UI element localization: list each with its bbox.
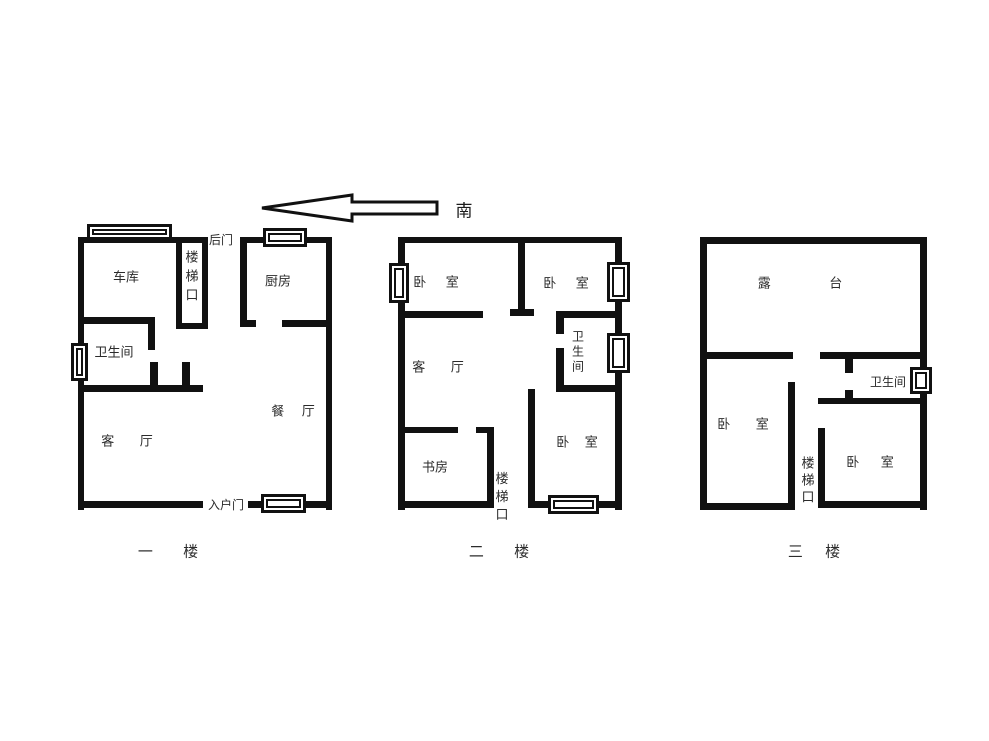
floor-title: 一 楼: [138, 541, 198, 562]
wall: [556, 348, 564, 390]
wall: [818, 428, 825, 508]
room-label: 入户门: [208, 499, 244, 511]
wall: [398, 427, 458, 433]
room-label: 卫生间: [870, 376, 906, 388]
room-label: 车库: [113, 271, 139, 284]
wall: [78, 317, 155, 324]
wall: [518, 243, 525, 315]
window-inner-line: [612, 267, 625, 297]
wall: [487, 427, 494, 508]
room-label: 露 台: [758, 277, 843, 290]
window-symbol: [607, 262, 630, 302]
window-inner-line: [266, 499, 301, 508]
window-inner-line: [92, 229, 167, 235]
room-label: 卧 室: [543, 277, 589, 290]
wall: [700, 237, 707, 510]
room-label: 书房: [422, 461, 448, 474]
room-label: 厨房: [265, 275, 291, 288]
wall: [240, 243, 247, 327]
south-arrow-icon: [0, 0, 989, 741]
window-inner-line: [394, 268, 404, 298]
room-label: 卧 室: [846, 456, 894, 469]
wall: [845, 359, 853, 373]
wall: [556, 385, 618, 392]
floor-plan-canvas: 南 车库楼 梯 口后门厨房卫生间客 厅餐 厅入户门一 楼卧 室卧 室卫 生 间客…: [0, 0, 989, 741]
room-label: 卧 室: [556, 436, 598, 449]
wall: [700, 352, 793, 359]
window-symbol: [261, 494, 306, 513]
window-symbol: [548, 495, 599, 514]
window-inner-line: [612, 338, 625, 368]
window-symbol: [71, 343, 88, 381]
wall: [148, 317, 155, 350]
wall: [282, 320, 332, 327]
wall: [303, 501, 332, 508]
window-inner-line: [915, 372, 927, 389]
wall: [398, 501, 494, 508]
room-label: 客 厅: [101, 435, 153, 448]
wall: [700, 503, 795, 510]
wall: [398, 311, 483, 318]
wall: [818, 398, 927, 404]
wall: [528, 389, 535, 508]
room-label: 卧 室: [413, 276, 459, 289]
window-inner-line: [553, 500, 594, 509]
wall: [182, 362, 190, 392]
room-label: 楼 梯 口: [185, 248, 198, 305]
window-symbol: [910, 367, 932, 394]
room-label: 客 厅: [412, 361, 464, 374]
room-label: 楼 梯 口: [495, 470, 508, 524]
room-label: 卫生间: [94, 346, 133, 359]
wall: [398, 237, 622, 243]
wall: [326, 237, 332, 510]
window-inner-line: [76, 348, 83, 376]
wall: [788, 382, 795, 510]
wall: [556, 311, 618, 318]
wall: [176, 243, 182, 329]
wall: [78, 501, 203, 508]
window-symbol: [607, 333, 630, 373]
wall: [700, 237, 927, 244]
window-symbol: [263, 228, 307, 247]
window-symbol: [389, 263, 409, 303]
room-label: 楼 梯 口: [801, 455, 814, 506]
wall: [176, 323, 208, 329]
room-label: 卧 室: [717, 418, 769, 431]
room-label: 卫 生 间: [572, 330, 584, 375]
floor-title: 三 楼: [788, 541, 840, 562]
floor-title: 二 楼: [469, 541, 529, 562]
wall: [818, 501, 927, 508]
room-label: 后门: [209, 234, 233, 246]
wall: [820, 352, 927, 359]
window-symbol: [87, 224, 172, 240]
wall: [150, 362, 158, 385]
room-label: 餐 厅: [271, 405, 315, 418]
wall: [202, 243, 208, 329]
wall: [510, 309, 534, 316]
window-inner-line: [268, 233, 302, 242]
wall: [240, 320, 256, 327]
wall: [556, 318, 564, 334]
south-label: 南: [456, 197, 473, 222]
